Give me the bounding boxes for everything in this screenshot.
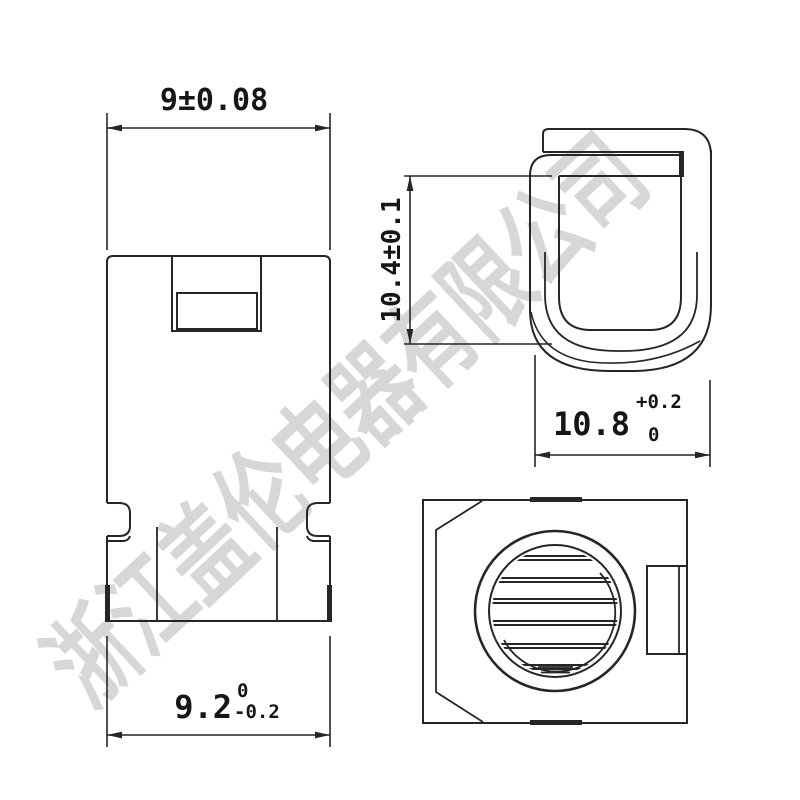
arrowhead xyxy=(315,125,330,132)
arrowhead xyxy=(695,452,710,459)
dim-label-front-top-width: 9±0.08 xyxy=(160,83,268,118)
front-body-top xyxy=(107,256,330,262)
drawing-svg: 浙江盖伦电器有限公司 9±0.08 xyxy=(0,0,800,800)
arrowhead xyxy=(107,732,122,739)
side-strap-joint xyxy=(679,152,684,177)
arrowhead xyxy=(107,125,122,132)
front-left-notch xyxy=(107,503,130,536)
wire-hole-inner-circle xyxy=(489,545,621,677)
dim-label-lower-tol: 0 xyxy=(648,424,659,446)
wire-hole-spiral-arc xyxy=(504,573,615,672)
arrowhead xyxy=(407,176,414,191)
bottom-side-window xyxy=(647,566,687,654)
bottom-view xyxy=(423,497,687,725)
dim-label-side-width: 10.8 xyxy=(553,405,630,443)
front-tab-window xyxy=(177,293,257,329)
arrowhead xyxy=(315,732,330,739)
dimension-front-top-width: 9±0.08 xyxy=(107,83,330,250)
bottom-top-contact-strip xyxy=(530,497,582,502)
front-left-contact-strip xyxy=(105,585,110,622)
bottom-bottom-contact-strip xyxy=(530,720,582,725)
dim-label-lower-tol: -0.2 xyxy=(234,701,280,723)
dim-label-upper-tol: 0 xyxy=(237,680,248,702)
arrowhead xyxy=(535,452,550,459)
drawing-canvas: 浙江盖伦电器有限公司 9±0.08 xyxy=(0,0,800,800)
front-right-contact-strip xyxy=(327,585,332,622)
dim-label-front-bottom-width: 9.2 xyxy=(174,688,232,726)
dim-label-upper-tol: +0.2 xyxy=(636,391,682,413)
dim-label-side-height: 10.4±0.1 xyxy=(377,197,407,322)
